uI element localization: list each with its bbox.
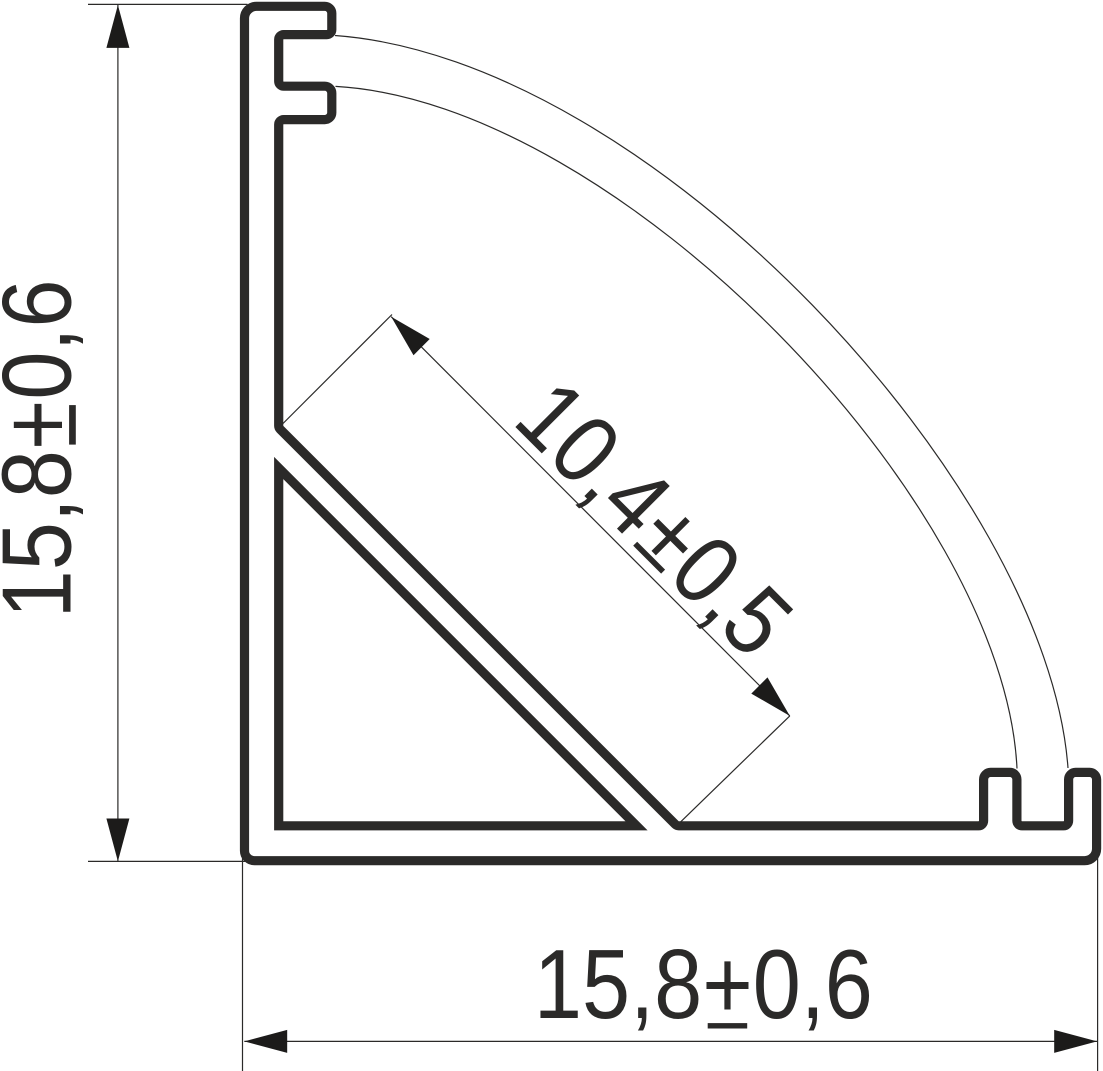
svg-text:15,8+0,6: 15,8+0,6 (0, 279, 92, 618)
svg-text:15,8+0,6: 15,8+0,6 (534, 929, 873, 1039)
